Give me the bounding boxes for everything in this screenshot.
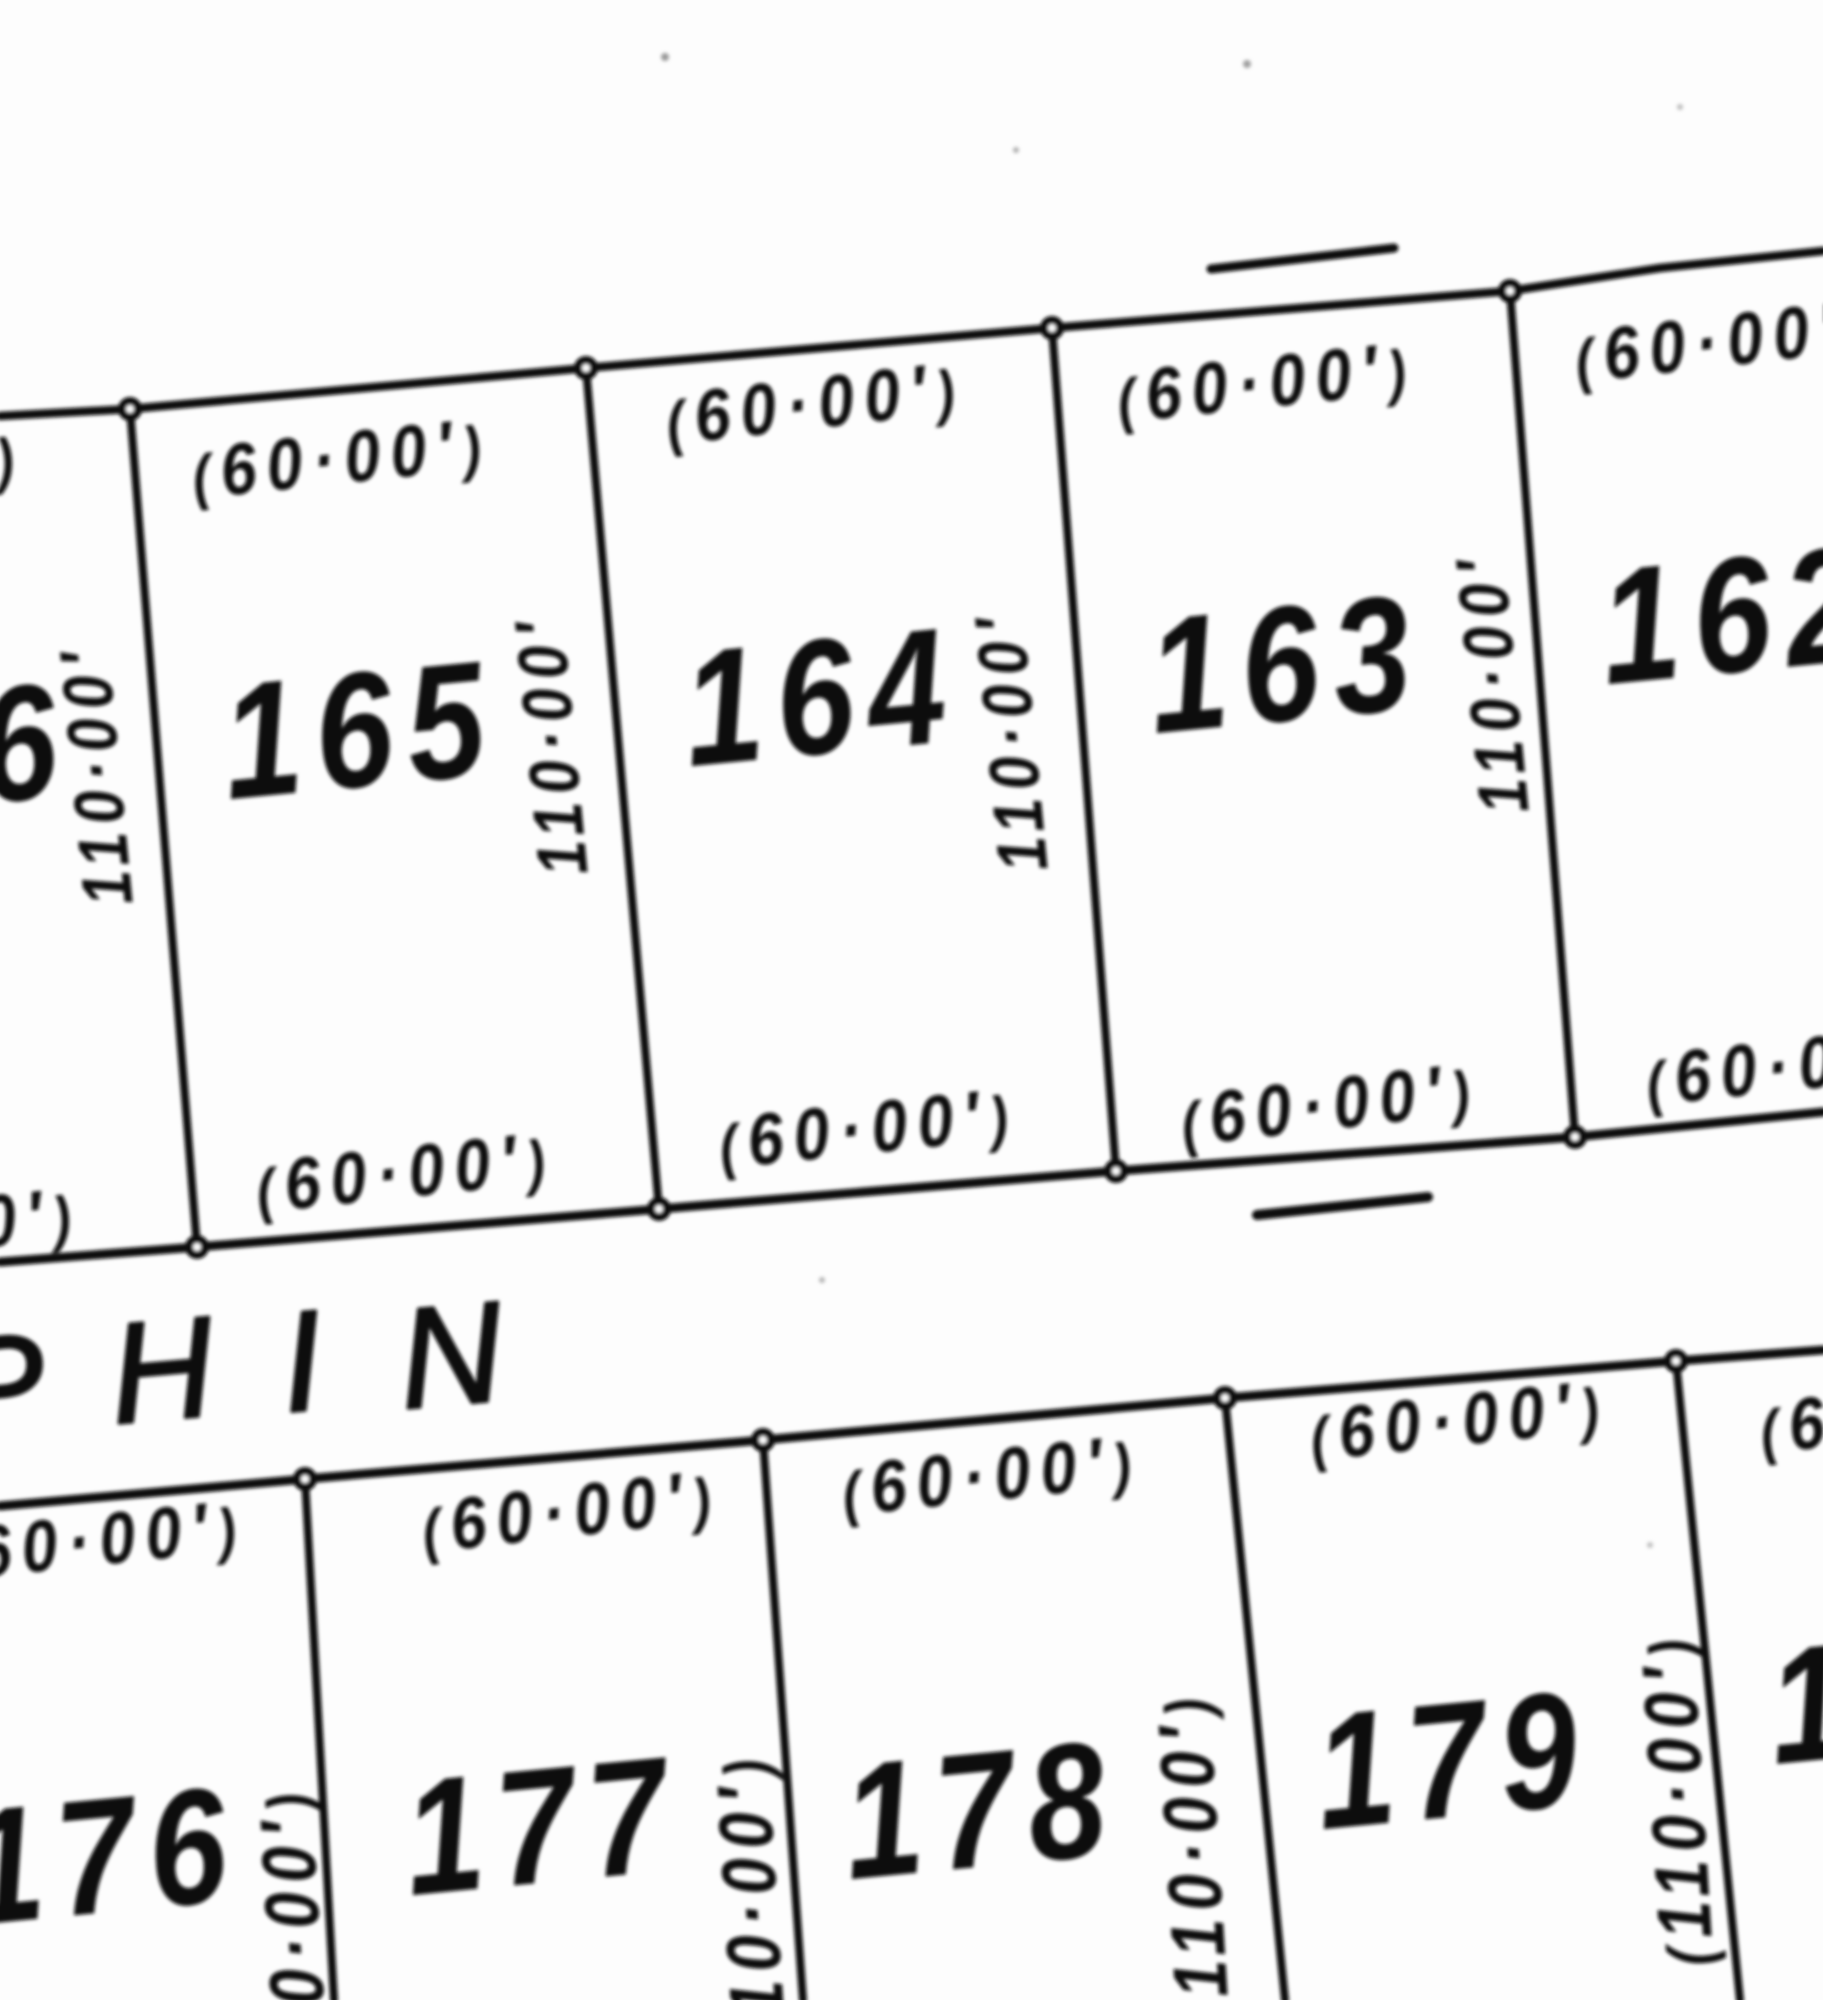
svg-text:176: 176	[0, 1752, 249, 1961]
svg-text:162: 162	[1593, 511, 1823, 720]
svg-text:177: 177	[397, 1722, 689, 1931]
svg-text:165: 165	[215, 626, 507, 835]
svg-text:H: H	[104, 1287, 220, 1454]
svg-text:179: 179	[1308, 1656, 1600, 1865]
svg-text:N: N	[393, 1272, 509, 1439]
svg-text:164: 164	[676, 593, 968, 802]
svg-text:178: 178	[836, 1706, 1128, 1915]
svg-text:163: 163	[1141, 560, 1433, 769]
